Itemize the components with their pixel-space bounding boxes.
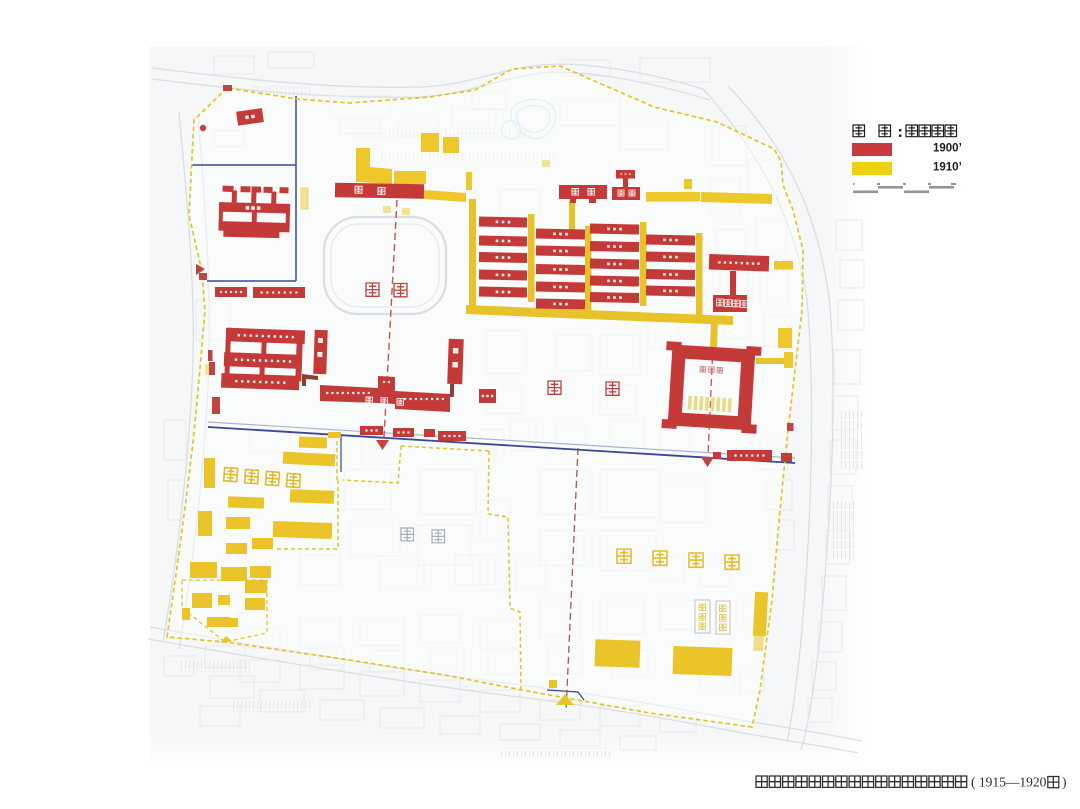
svg-text:1900’: 1900’	[933, 143, 962, 155]
svg-text:): )	[1062, 775, 1067, 790]
svg-text:1910’: 1910’	[933, 162, 962, 174]
svg-text:( 1915—1920: ( 1915—1920	[971, 775, 1047, 790]
